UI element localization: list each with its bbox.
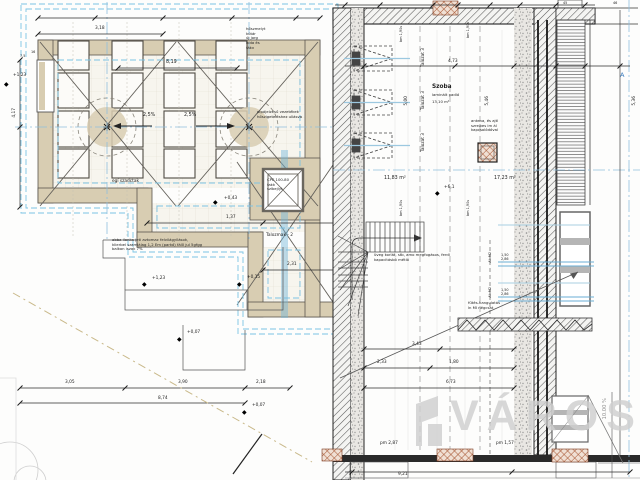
dim-label: 16 [31,50,35,54]
pm-label: pm 1,57 [496,441,514,446]
height-tag: bm 1,90s [399,200,403,216]
dim-label: 46 [613,1,617,5]
note-antenna: antena, és ajtl szrelkes im ál kapcsolód… [471,119,498,133]
note-boiler: abba ilonka jeti avtomac felvilágyílások… [112,238,202,252]
window-tag: Talozat 3 [421,48,426,67]
axis-marker-a: A [620,71,624,79]
note-cpe-shaft: CPE 100-80 fakk szíbejlyt [267,178,289,192]
elevation-label: +1,23 [152,276,165,281]
dim-label: 7,5 [20,54,25,58]
area-label: 11,83 m² [384,176,406,182]
annex [37,60,54,112]
elevation-label: +0,43 [224,196,237,201]
elevation-label: +6,1 [444,185,454,190]
note-egi: egí szadctak [112,179,139,184]
floorplan-canvas: hőszmelyt kútár új jorg hída és fákv 3,1… [0,0,640,480]
dim-label: 4,73 [448,59,458,64]
window-dims: 1,50 2,86 [501,288,509,297]
dim-label: 1,80 [449,360,459,365]
elevation-marker-icon: ◆ [4,82,9,88]
dim-label: 3,43 [412,342,422,347]
faint-outline [0,378,16,480]
note-glass-railing: üveg korlát, stb, amo megfogásos, ferdl … [374,253,450,262]
tree-arcs [0,442,46,480]
elevation-label: +1,23 [13,73,26,78]
dim-label: 3,18 [95,26,105,31]
window-mark: Ab M2 [488,287,492,298]
note-taloz2: Talozmak - 2 [266,233,293,238]
elevation-marker-icon: ◆ [237,282,242,288]
dim-label: 1,37 [226,215,236,220]
dim-label: 6,73 [446,380,456,385]
ground-band [333,455,640,478]
slope-label: 2,5% [143,113,155,119]
elevation-marker-icon: ◆ [142,282,147,288]
elevation-label: +0,15 [247,275,260,280]
window-dims: 1,50 2,86 [501,253,509,262]
wall-window-symbols [344,46,410,158]
dim-label: 5,00 [404,96,409,106]
dim-label: 2,31 [287,262,297,267]
room-area: 13,10 m² [432,100,449,105]
dim-label: 3,90 [178,380,188,385]
deck-strip [556,0,595,205]
watermark-text: VÁROSI [450,392,640,441]
flue-shaft [478,143,497,162]
elevation-marker-icon: ◆ [177,337,182,343]
height-tag: bm 1,90s [399,26,403,42]
dim-label: 4,17 [12,108,17,118]
slope-label: 2,5% [184,113,196,119]
elevation-marker-icon: ◆ [213,200,218,206]
elevation-marker-icon: ◆ [242,410,247,416]
dim-label: 3,05 [65,380,75,385]
dim-label: 9,21 [398,472,408,477]
dim-label: 2,18 [256,380,266,385]
property-line [13,293,312,462]
window-mark: Ab M2 [488,252,492,263]
window-tag: Talozat 3 [421,133,426,152]
height-tag: bm 1,90s [466,200,470,216]
elevation-marker-icon: ◆ [435,191,440,197]
dim-label: 5,36 [632,96,637,106]
room-floor: laminált padló [432,93,459,98]
dim-label: 8,19 [166,60,177,66]
note-heatpump: hőszmelyt kútár új jorg hída és fákv [246,27,266,51]
height-tag: bm 1,90s [466,22,470,38]
dim-label: 5,46 [485,96,490,106]
note-pipes: pipájelzésű vezetékek hőszigeteléshez ul… [257,110,302,119]
area-label: 17,23 m² [494,176,516,182]
dim-label: 8,74 [158,396,168,401]
boundary-segment [233,434,262,474]
pm-label: pm 2,87 [380,441,398,446]
duct-beam [458,318,592,331]
dim-label: 2,33 [377,360,387,365]
note-heating: fűtés-hangulatás ln MI négcsat [468,301,500,310]
elevation-label: +0,07 [252,403,265,408]
elevation-label: +0,07 [187,330,200,335]
dim-label: 45 [563,1,567,5]
window-tag: Talozat 3 [421,91,426,110]
room-name: Szoba [432,84,452,91]
